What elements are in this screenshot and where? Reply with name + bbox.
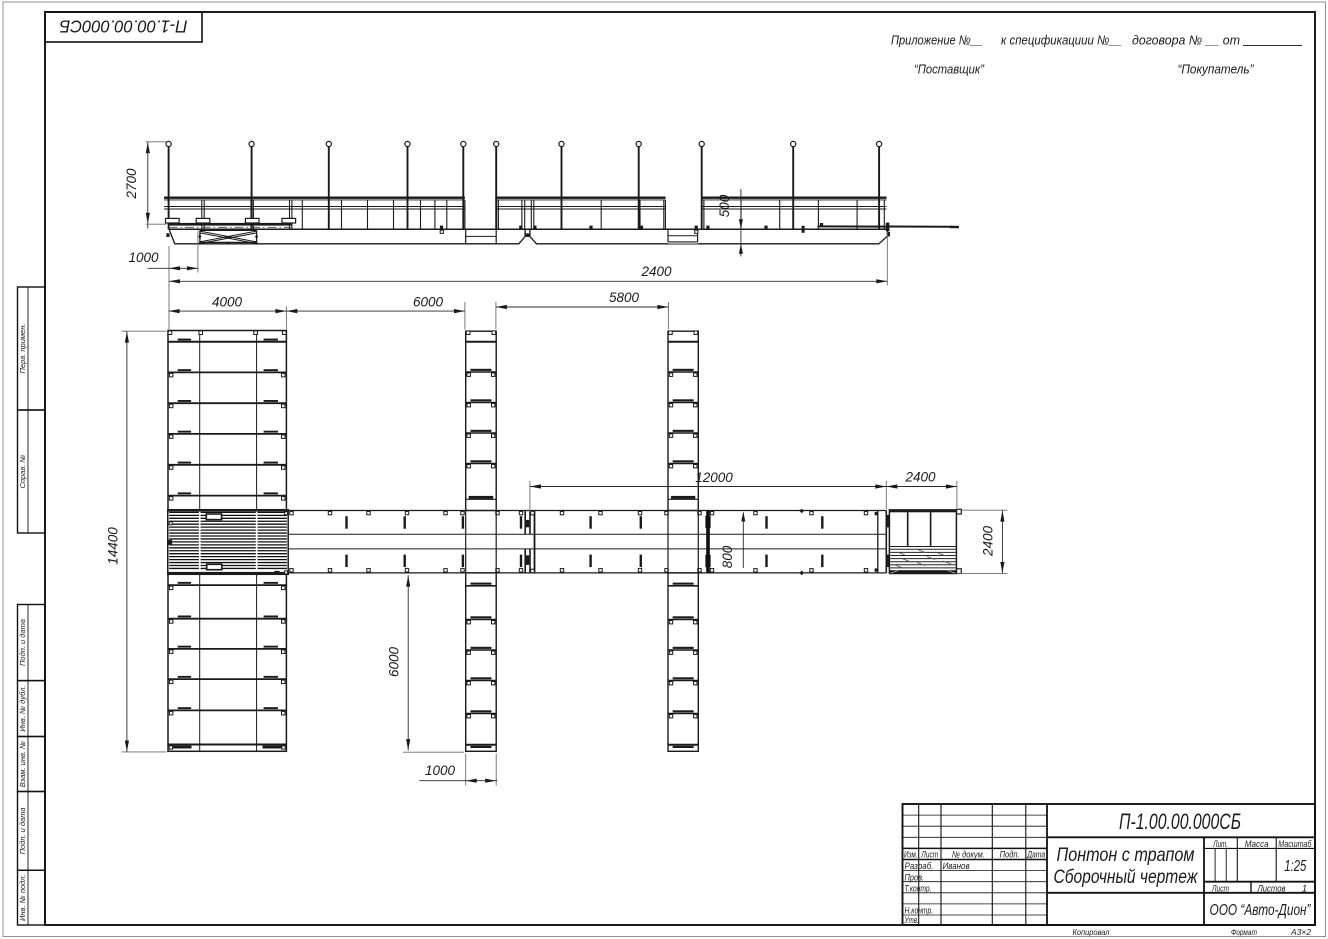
svg-text:П-1.00.00.000СБ: П-1.00.00.000СБ [1119,809,1241,834]
svg-text:Дата: Дата [1026,850,1045,860]
svg-text:Подп.: Подп. [1000,850,1020,860]
svg-text:Взам. инв. №: Взам. инв. № [18,741,27,787]
svg-text:Лист: Лист [1211,884,1229,894]
svg-text:14400: 14400 [105,527,120,565]
svg-text:А3×2: А3×2 [1290,927,1311,937]
svg-text:Разраб.: Разраб. [905,861,934,871]
svg-text:1000: 1000 [425,763,456,778]
svg-text:2400: 2400 [980,525,995,557]
svg-text:ООО “Авто-Дион”: ООО “Авто-Дион” [1210,902,1311,919]
svg-text:2400: 2400 [904,470,936,485]
svg-text:Справ. №: Справ. № [18,454,27,488]
svg-text:Инв. № дубл.: Инв. № дубл. [18,685,27,731]
svg-text:Пров.: Пров. [905,872,925,882]
svg-text:к спецификациии №__: к спецификациии №__ [1001,33,1122,48]
svg-text:2400: 2400 [640,264,672,279]
svg-text:Лит.: Лит. [1212,839,1228,849]
svg-text:Иванов: Иванов [943,861,970,871]
svg-text:5800: 5800 [609,290,640,305]
svg-text:6000: 6000 [387,646,402,677]
svg-text:Масса: Масса [1245,839,1269,849]
svg-text:1:25: 1:25 [1284,858,1306,875]
svg-text:Подп. и дата: Подп. и дата [18,619,27,666]
svg-text:800: 800 [720,545,735,568]
svg-text:1: 1 [1302,884,1307,894]
svg-text:П-1.00.00.000СБ: П-1.00.00.000СБ [60,17,188,37]
svg-text:6000: 6000 [413,294,444,309]
svg-text:Утв.: Утв. [904,915,919,925]
svg-text:Понтон с трапом: Понтон с трапом [1057,845,1195,866]
svg-text:4000: 4000 [212,294,243,309]
svg-text:№ докум.: № докум. [952,850,985,860]
svg-text:Сборочный чертеж: Сборочный чертеж [1054,867,1199,888]
svg-text:Формат: Формат [1231,927,1257,937]
svg-text:Инв. № подл.: Инв. № подл. [18,874,27,921]
svg-text:Приложение №__: Приложение №__ [891,33,983,48]
svg-text:Изм.: Изм. [904,850,918,860]
svg-text:2700: 2700 [124,168,139,200]
svg-text:Перв. примен.: Перв. примен. [18,324,27,374]
svg-text:Лист: Лист [921,850,939,860]
svg-text:“Покупатель”: “Покупатель” [1178,62,1255,77]
svg-text:Т.контр.: Т.контр. [905,883,932,893]
svg-text:договора № __ от: договора № __ от [1132,33,1240,48]
svg-text:Масштаб: Масштаб [1278,839,1312,849]
svg-text:“Поставщик”: “Поставщик” [914,62,985,77]
svg-text:Подп. и дата: Подп. и дата [18,807,27,854]
svg-text:12000: 12000 [695,470,733,485]
svg-text:Листов: Листов [1257,884,1286,894]
svg-text:500: 500 [717,194,732,217]
svg-text:Копировал: Копировал [1073,927,1110,937]
svg-text:1000: 1000 [129,250,160,265]
